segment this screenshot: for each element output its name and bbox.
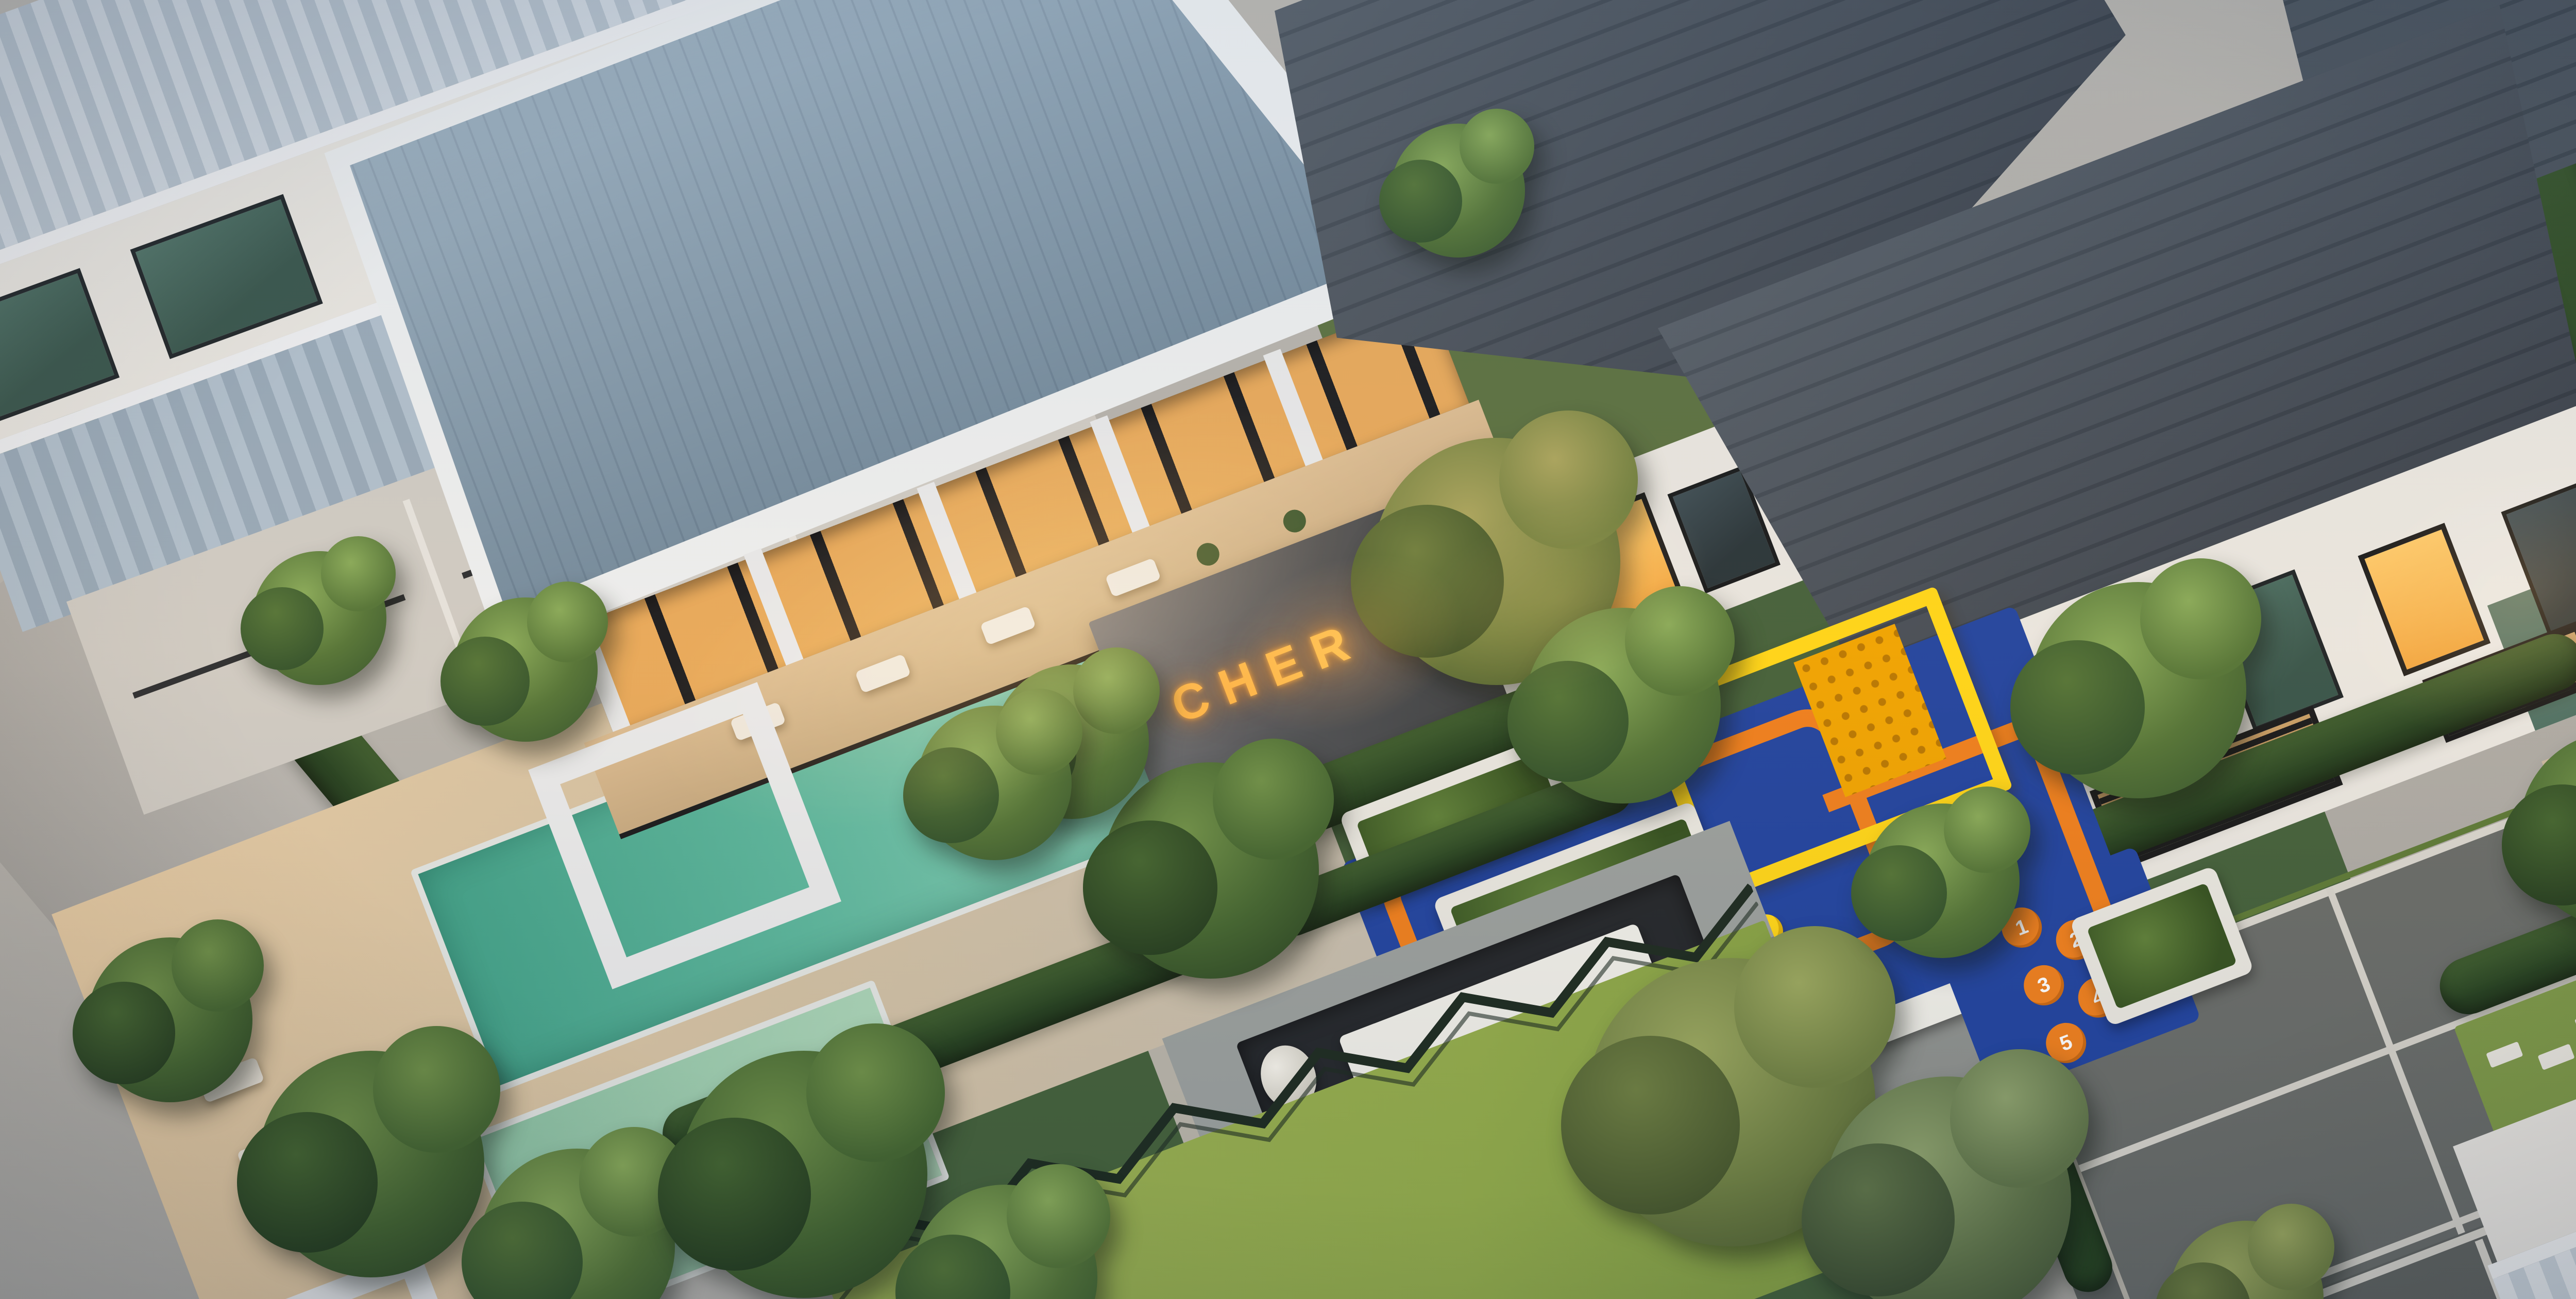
- tree: [252, 551, 386, 685]
- tree: [2030, 582, 2246, 798]
- tree: [680, 1051, 927, 1298]
- tree: [88, 937, 252, 1102]
- tree: [1391, 124, 1525, 258]
- aerial-photo-residential-development: CHER HUB: [0, 0, 2576, 1299]
- tree: [258, 1051, 484, 1277]
- tree: [1865, 804, 2020, 958]
- tree: [453, 597, 598, 742]
- tree: [1525, 608, 1721, 804]
- terrace-chair: [980, 606, 1036, 645]
- terrace-chair: [855, 654, 911, 693]
- tree: [1103, 762, 1319, 979]
- driveway-line: [2326, 886, 2465, 1235]
- lit-window: [2358, 523, 2491, 676]
- tree: [917, 706, 1072, 860]
